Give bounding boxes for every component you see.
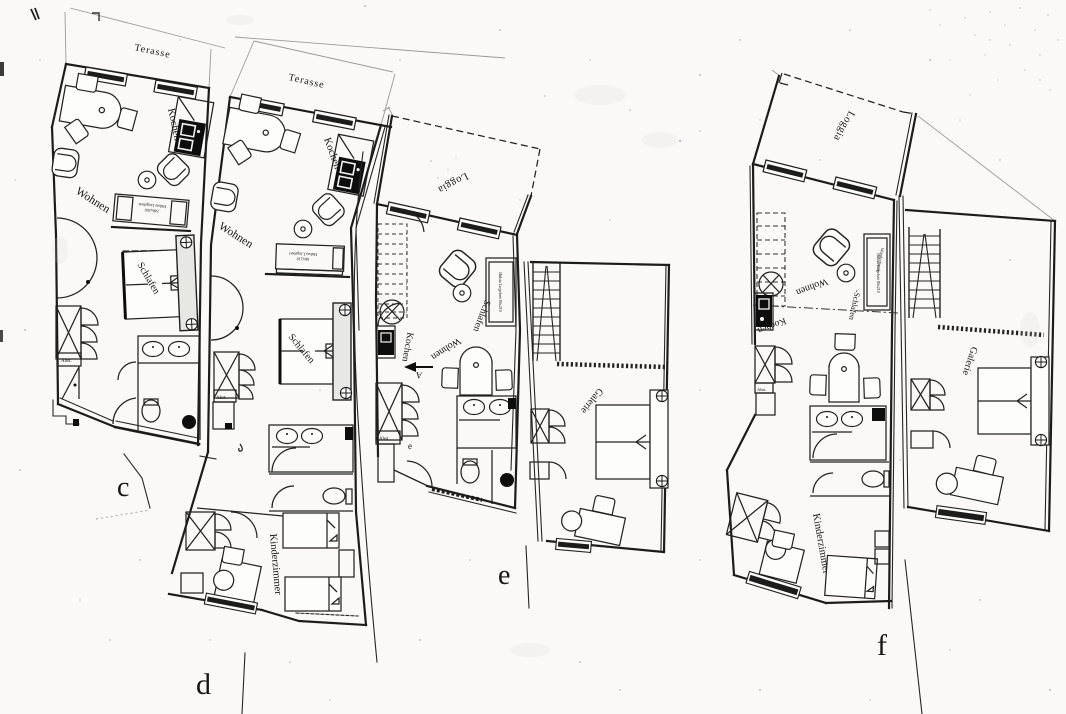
- svg-text:Abst.: Abst.: [757, 387, 767, 392]
- svg-text:Hülsta Liegebett: Hülsta Liegebett: [288, 251, 317, 257]
- svg-text:e: e: [498, 560, 510, 591]
- svg-text:80x210: 80x210: [297, 257, 310, 262]
- svg-text:c: c: [117, 472, 129, 503]
- svg-text:f: f: [877, 629, 887, 662]
- svg-text:Hülsta Liegebett 80x210: Hülsta Liegebett 80x210: [498, 272, 503, 312]
- svg-text:Abst.: Abst.: [379, 437, 390, 442]
- svg-text:d: d: [196, 668, 211, 701]
- svg-text:Abst.: Abst.: [216, 396, 227, 401]
- svg-text:Abst.: Abst.: [61, 359, 72, 364]
- svg-text:e: e: [408, 441, 412, 451]
